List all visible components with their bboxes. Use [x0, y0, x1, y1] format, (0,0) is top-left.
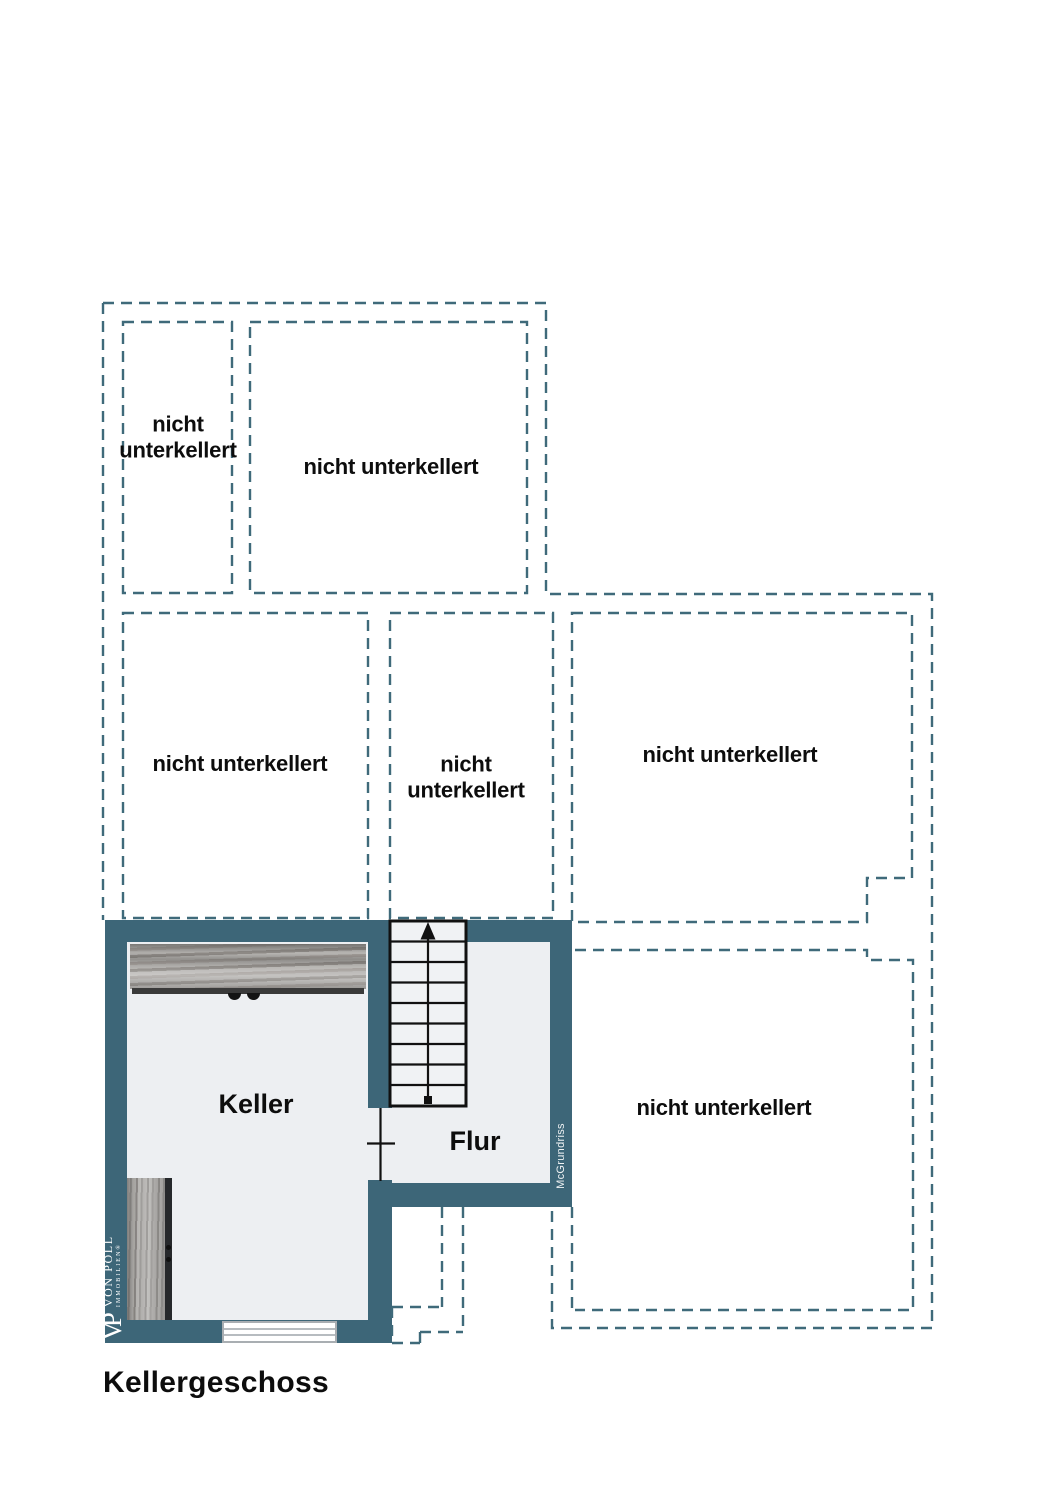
room-label-keller: Keller: [218, 1088, 293, 1120]
cabinet-knob-bottom: [166, 1257, 171, 1262]
area-label-bottom-right: nicht unterkellert: [637, 1095, 812, 1121]
door-opening-gap: [368, 1106, 392, 1183]
area-label-mid-left: nicht unterkellert: [153, 751, 328, 777]
von-poll-name: VON POLL: [102, 1235, 114, 1307]
area-label-mid-right: nicht unterkellert: [643, 742, 818, 768]
wall-bottom-flur: [368, 1183, 572, 1207]
exterior-stair-outline: [392, 1207, 463, 1343]
area-label-top-right: nicht unterkellert: [304, 454, 479, 480]
floor-plan-page: nicht unterkellert nicht unterkellert ni…: [0, 0, 1060, 1500]
von-poll-monogram-icon: VP: [99, 1312, 126, 1341]
cabinet-knob-top: [166, 1245, 171, 1250]
wall-top: [105, 920, 572, 942]
basement-window: [222, 1321, 337, 1343]
area-label-mid-center: nicht unterkellert: [400, 752, 532, 805]
von-poll-subtitle: IMMOBILIEN®: [116, 1243, 122, 1307]
workbench-wood-top: [130, 944, 366, 989]
floor-title: Kellergeschoss: [103, 1366, 329, 1400]
von-poll-logo-text: VON POLL IMMOBILIEN®: [102, 1235, 122, 1307]
area-label-top-left: nicht unterkellert: [112, 412, 244, 465]
window-pane-line: [224, 1328, 335, 1330]
wall-divider-upper: [368, 920, 392, 1108]
von-poll-logo: VP VON POLL IMMOBILIEN®: [97, 1233, 127, 1343]
window-pane-line: [224, 1334, 335, 1336]
room-label-flur: Flur: [450, 1125, 501, 1157]
area-bottom-right-outline: [572, 950, 913, 1310]
watermark-mcgrundriss: McGrundriss: [555, 1115, 569, 1197]
